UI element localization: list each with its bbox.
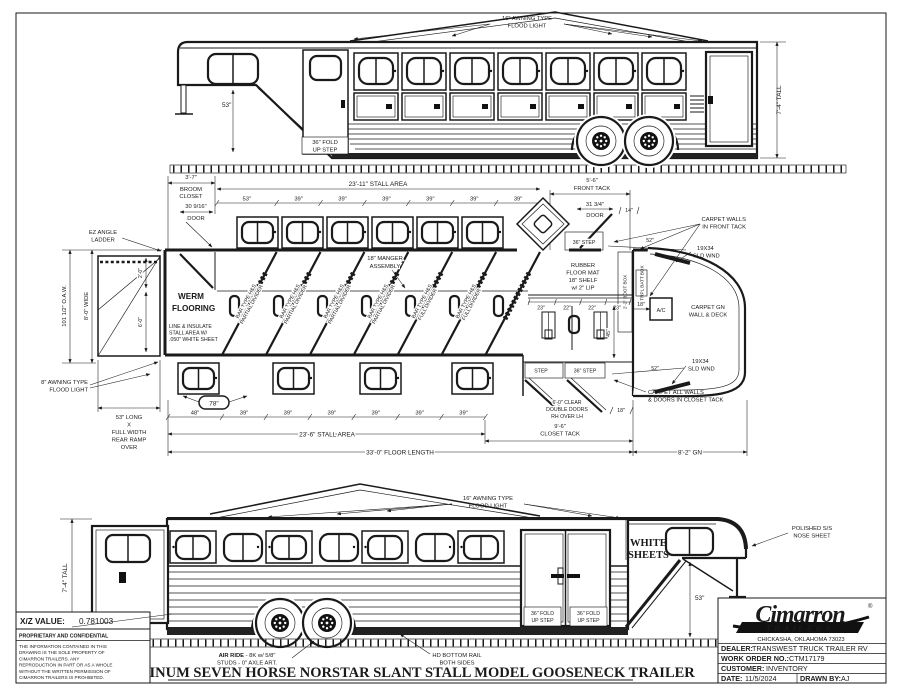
white-sheets-label: WHITE [630, 538, 667, 549]
note-label: 18" MANGER [367, 256, 403, 262]
note-label: 18" SHELF [569, 278, 598, 284]
note-label: SLD WND [693, 254, 720, 260]
dim-label: FRONT TACK [574, 186, 611, 192]
customer-value: INVENTORY [766, 664, 808, 673]
note-label: 36" FOLD [312, 140, 338, 146]
note-label: RUBBER [571, 263, 595, 269]
rear-ramp-door [92, 526, 168, 623]
note-label: CARPET ALL WALLS [648, 390, 704, 396]
stall-width-top-dims: 53" 39" 39" 39" 39" 39" 39" [215, 197, 542, 207]
note-label: .050" WHITE SHEET [169, 337, 219, 343]
note-label: IN FRONT TACK [702, 225, 746, 231]
awning-flood-note: 8" AWNING TYPE FLOOD LIGHT [41, 362, 158, 394]
dim-label: 53" [695, 595, 704, 602]
dim-label: 8'-0" WIDE [84, 292, 90, 320]
dim-label: 23'-6" STALL AREA [299, 432, 355, 439]
note-label: POLISHED S/S [792, 526, 832, 532]
note-label: REAR RAMP [112, 438, 147, 444]
note-label: 8" AWNING TYPE [41, 380, 88, 386]
clear-doors-note: 6'-0" CLEAR DOUBLE DOORS RH OVER LH 18" [546, 400, 633, 420]
note-label: FLOOD LIGHT [508, 24, 547, 30]
dim-label: 18" [617, 408, 625, 414]
ez-ladder-note: EZ ANGLE LADDER [89, 230, 161, 251]
note-label: 36" FOLD [577, 611, 600, 617]
dim-label: 39" [459, 411, 468, 417]
werm-flooring-label: FLOORING [172, 304, 215, 313]
gn-length-dim: 8'-2" GN [633, 450, 747, 457]
note-label: DOUBLE DOORS [546, 407, 588, 413]
dim-label: 53" [243, 197, 252, 203]
hitch-coupler [175, 85, 193, 114]
note-label: AIR RIDE [219, 653, 245, 659]
dim-label: 9'-6" [554, 424, 566, 430]
note-label: FLOOR MAT [566, 271, 600, 277]
dim-label: 48" [191, 411, 200, 417]
stall-width-bottom-dims: 48" 39" 39" 39" 39" 39" 39" [166, 411, 487, 421]
note-label: w/ 2" LIP [570, 286, 594, 292]
dim-label: 3'-7" [185, 175, 197, 181]
brand-sub: TRAILERS [766, 625, 834, 634]
dim-label: 52" [651, 366, 659, 372]
note-label: LADDER [91, 238, 115, 244]
dim-label: 39" [415, 411, 424, 417]
note-label: FLOOD LIGHT [49, 388, 88, 394]
fold-step-note-right: 36" FOLD UP STEP [570, 607, 607, 626]
note-label: TRPL BATT BOX [640, 265, 645, 300]
xz-value-box: X/Z VALUE: 0.781003 [16, 612, 172, 629]
dim-label: 39" [338, 197, 347, 203]
floor-length-dim: 33'-0" FLOOR LENGTH [168, 450, 633, 457]
front-tack-door: 36" STEP [565, 214, 612, 250]
tack-shelf: RUBBER FLOOR MAT 18" SHELF w/ 2" LIP 23"… [528, 263, 632, 358]
note-label: UP STEP [577, 618, 600, 624]
gn-clearance-dim: 53" [690, 562, 704, 637]
dim-label: DOOR [586, 213, 603, 219]
note-label: FULL WIDTH [112, 430, 147, 436]
dim-label: CLOSET TACK [540, 432, 580, 438]
dim-label: 39" [328, 411, 337, 417]
plan-bottom-windows [178, 363, 493, 394]
wheel [622, 114, 676, 168]
dim-label: 101 1/2" O.A.W. [62, 285, 68, 327]
dealer-value: TRANSWEST TRUCK TRAILER RV [752, 644, 868, 653]
proprietary-box: PROPRIETARY AND CONFIDENTIAL THE INFORMA… [16, 629, 150, 683]
note-label: CARPET GN [691, 305, 725, 311]
wheel [300, 596, 354, 650]
divider-labels: BAR TYPE H&SPARTIAL DIVIDER BAR TYPE H&S… [234, 281, 484, 325]
note-label: HD BOTTOM RAIL [432, 653, 482, 659]
proprietary-text: DRAWING IS THE SOLE PROPERTY OF [19, 650, 105, 655]
note-label: 36" STEP [573, 240, 596, 246]
dim-label: 7'-4" TALL [62, 563, 69, 593]
note-label: 53" LONG [116, 415, 143, 421]
note-label: 36" STEP [574, 369, 597, 375]
door-30-dim: 30 9/16" DOOR [180, 204, 213, 247]
manger-note: 18" MANGER ASSEMBLY [367, 256, 405, 288]
dim-label: 45" [606, 329, 612, 337]
xz-value: 0.781003 [79, 617, 114, 626]
note-label: WALL & DECK [689, 313, 728, 319]
note-label: RH OVER LH [551, 414, 583, 420]
note-label: & DOORS IN CLOSET TACK [648, 398, 724, 404]
proprietary-text: CIMARRON TRAILERS. ANY [19, 656, 79, 661]
proprietary-text: THE INFORMATION CONTAINED IN THIS [19, 644, 107, 649]
dim-label: 7'-4" TALL [776, 85, 783, 115]
top-side-elevation: 53" 36" FOLD UP STEP [170, 12, 846, 173]
note-label: UP STEP [531, 618, 554, 624]
dim-label: 39" [371, 411, 380, 417]
note-label: NOSE SHEET [793, 534, 831, 540]
dim-label: 23" [613, 306, 621, 312]
note-label: - 8K w/ 5/8" [244, 653, 275, 659]
drawn-by-value: AJ [841, 674, 850, 683]
dim-label: 23'-11" STALL AREA [349, 181, 409, 188]
title-block: Cimarron TRAILERS ® CHICKASHA, OKLAHOMA … [718, 598, 886, 683]
dealer-label: DEALER: [721, 644, 753, 653]
proprietary-text: CIMARRON TRAILERS IS PROHIBITED. [19, 675, 104, 680]
fold-up-step-note: 36" FOLD UP STEP [302, 137, 348, 154]
fold-step-note-left: 36" FOLD UP STEP [524, 607, 561, 626]
rear-side-door [706, 52, 752, 146]
gooseneck-window [208, 54, 258, 84]
proprietary-text: WITHOUT THE WRITTEN PERMISSION OF [19, 669, 111, 674]
date-value: 11/5/2024 [745, 674, 776, 683]
note-label: 6'-0" CLEAR [552, 400, 581, 406]
rear-ramp-plan: 2'-0" 6'-0" [98, 256, 160, 356]
note-label: STALL AREA W/ [169, 331, 208, 337]
ac-unit: A/C 18" [634, 298, 672, 320]
work-order-value: CTM17179 [789, 654, 825, 663]
note-label: ASSEMBLY [370, 264, 401, 270]
plan-top-windows [237, 217, 503, 248]
insulate-note: LINE & INSULATE STALL AREA W/ .050" WHIT… [169, 324, 219, 343]
dim-label: 53" [222, 102, 231, 109]
customer-label: CUSTOMER: [721, 664, 764, 673]
gooseneck-height-dim: 53" [222, 90, 233, 152]
dim-label: 78" [209, 401, 218, 408]
note-label: UP STEP [313, 148, 338, 154]
stall-area-top-dim: 23'-11" STALL AREA [217, 181, 540, 189]
trailer-drawing: 53" 36" FOLD UP STEP [0, 0, 900, 696]
white-sheets-label: SHEETS [628, 550, 669, 561]
proprietary-text: REPRODUCTION IN PART OR AS A WHOLE [19, 663, 112, 668]
dim-label: 6'-0" [138, 317, 144, 327]
dim-label: 23" [537, 306, 545, 312]
work-order-row: WORK ORDER NO.: CTM17179 [721, 654, 825, 663]
dim-label: 31 3/4" [586, 202, 604, 208]
dim-label: 39" [426, 197, 435, 203]
dim-label: 22" [563, 306, 571, 312]
note-label: FLOOD LIGHT [469, 504, 508, 510]
note-label: STEP [534, 369, 548, 375]
dim-label: 2'-0" [138, 268, 144, 278]
dim-label: 22" [588, 306, 596, 312]
wheel [574, 114, 628, 168]
dim-label: 18" [637, 302, 645, 308]
floor-plan-view: 3'-7" BROOM CLOSET 30 9/16" DOOR 23'-11"… [41, 175, 747, 457]
note-label: CARPET WALLS [702, 217, 747, 223]
stall-windows-row [354, 53, 686, 90]
note-label: EZ ANGLE [89, 230, 117, 236]
carpet-gn-note: CARPET GN WALL & DECK [689, 305, 728, 319]
dim-label: 39" [284, 411, 293, 417]
gn-window [666, 528, 713, 555]
dim-label: 39" [240, 411, 249, 417]
dim-label: 39" [382, 197, 391, 203]
proprietary-title: PROPRIETARY AND CONFIDENTIAL [19, 634, 109, 640]
boot-box: 2'-2" BOOT BOX [618, 252, 632, 332]
dim-label: 52" [646, 238, 654, 244]
work-order-label: WORK ORDER NO.: [721, 654, 789, 663]
ground-line-top [170, 165, 846, 173]
dim-label: 39" [470, 197, 479, 203]
dim-label: 30 9/16" [185, 204, 206, 210]
dim-label: 5'-6" [586, 178, 598, 184]
dim-label: 14" [625, 208, 633, 214]
registered-mark: ® [868, 603, 873, 610]
polished-nose-note: POLISHED S/S NOSE SHEET [752, 526, 832, 546]
note-label: OVER [121, 445, 137, 451]
note-label: A/C [657, 308, 666, 314]
broom-closet-dim: 3'-7" BROOM CLOSET [168, 175, 215, 250]
note-label: 2'-2" BOOT BOX [623, 275, 628, 309]
note-label: LINE & INSULATE [169, 324, 212, 330]
drop-door-row [354, 93, 686, 120]
stall-area-bottom-dim: 23'-6" STALL AREA [168, 432, 485, 439]
open-door-diamond [517, 198, 569, 250]
height-dim: 7'-4" TALL [760, 42, 786, 158]
spacing-oval: 78" [183, 396, 247, 409]
drawing-title: ALUMINUM SEVEN HORSE NORSTAR SLANT STALL… [105, 665, 695, 681]
brand-address: CHICKASHA, OKLAHOMA 73023 [757, 637, 844, 643]
dim-label: BROOM [180, 187, 202, 193]
note-label: X [127, 423, 131, 429]
note-label: 19X34 [697, 246, 715, 252]
dim-label: 8'-2" GN [678, 450, 702, 457]
ramp-note: 53" LONG X FULL WIDTH REAR RAMP OVER [98, 360, 160, 451]
drawn-by-label: DRAWN BY: [800, 674, 841, 683]
werm-flooring-label: WERM [178, 292, 204, 301]
note-label: 36" FOLD [531, 611, 554, 617]
dim-label: 33'-0" FLOOR LENGTH [366, 450, 434, 457]
note-label: SLD WND [688, 367, 715, 373]
gooseneck-plan [633, 248, 745, 396]
cad-drawing-page: 53" 36" FOLD UP STEP [0, 0, 900, 696]
dim-label: 39" [294, 197, 303, 203]
dealer-row: DEALER: TRANSWEST TRUCK TRAILER RV [721, 644, 868, 653]
door-31-dim: 31 3/4" DOOR 14" [577, 202, 639, 219]
dim-label: 39" [514, 197, 523, 203]
svg-text:AIR RIDE - 8K w/ 5/8": AIR RIDE - 8K w/ 5/8" [219, 653, 276, 659]
date-label: DATE: [721, 674, 742, 683]
note-label: 16" AWNING TYPE [463, 496, 513, 502]
note-label: 16" AWNING TYPE [502, 16, 552, 22]
extension-lines [168, 400, 747, 456]
xz-label: X/Z VALUE: [20, 617, 65, 626]
closet-tack-dim: 9'-6" CLOSET TACK [485, 424, 633, 441]
dim-label: CLOSET [179, 194, 203, 200]
note-label: 19X34 [692, 359, 710, 365]
dim-label: DOOR [187, 216, 204, 222]
